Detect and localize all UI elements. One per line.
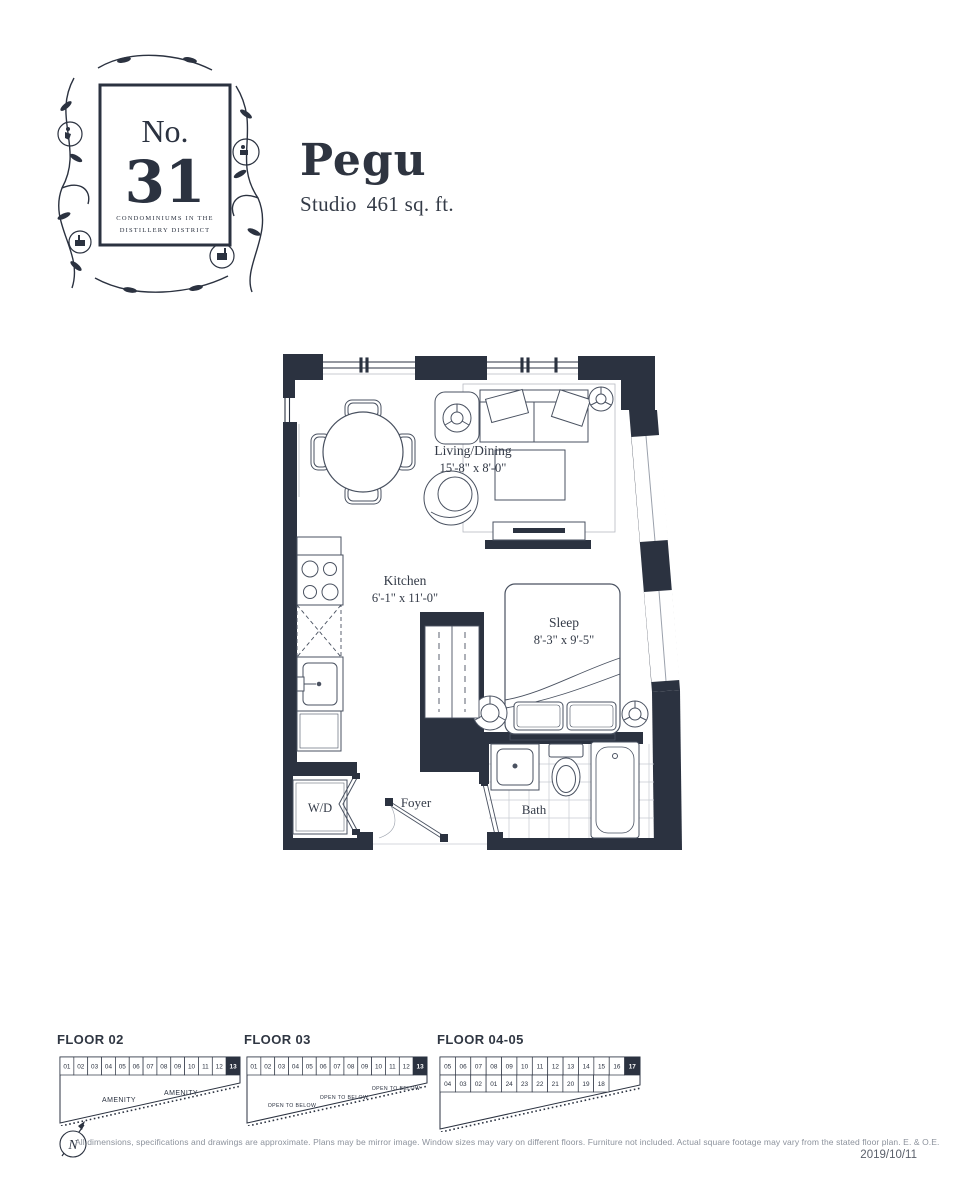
room-label-wd: W/D xyxy=(308,801,332,815)
room-label-foyer: Foyer xyxy=(401,795,432,810)
unit-number: 02 xyxy=(475,1081,483,1088)
unit-number: 07 xyxy=(146,1063,154,1070)
unit-number: 02 xyxy=(77,1063,85,1070)
area-label: AMENITY xyxy=(164,1090,198,1097)
unit-number: 17 xyxy=(629,1063,637,1070)
dining-set xyxy=(311,400,415,504)
unit-number: 01 xyxy=(250,1063,258,1070)
room-label-bath: Bath xyxy=(522,802,547,817)
wardrobe xyxy=(425,626,479,718)
plan-date: 2019/10/11 xyxy=(860,1149,917,1161)
unit-number: 09 xyxy=(506,1063,514,1070)
unit-number: 03 xyxy=(91,1063,99,1070)
unit-number: 06 xyxy=(133,1063,141,1070)
unit-name: Pegu xyxy=(300,138,454,184)
lower-cabinet xyxy=(297,711,341,751)
unit-number: 10 xyxy=(188,1063,196,1070)
keyplan-label: FLOOR 02 xyxy=(57,1032,243,1047)
toilet xyxy=(549,744,583,796)
unit-number: 08 xyxy=(490,1063,498,1070)
unit-number: 24 xyxy=(506,1081,514,1088)
unit-number: 21 xyxy=(552,1081,560,1088)
unit-number: 05 xyxy=(119,1063,127,1070)
unit-number: 12 xyxy=(216,1063,224,1070)
unit-number: 09 xyxy=(174,1063,182,1070)
unit-number: 13 xyxy=(417,1063,425,1070)
logo-number: 31 xyxy=(125,148,206,216)
unit-number: 16 xyxy=(613,1063,621,1070)
floor-lamp xyxy=(589,387,613,411)
room-label-living-dining: Living/Dining xyxy=(434,443,511,458)
vanity-sink xyxy=(491,744,539,790)
unit-number: 20 xyxy=(567,1081,575,1088)
floorplan-sheet: { "logo": { "prefix": "No.", "number": "… xyxy=(0,0,972,1188)
unit-number: 07 xyxy=(475,1063,483,1070)
unit-number: 01 xyxy=(63,1063,71,1070)
pillow xyxy=(567,702,616,730)
unit-number: 03 xyxy=(278,1063,286,1070)
unit-area: 461 sq. ft. xyxy=(367,192,454,216)
unit-number: 05 xyxy=(444,1063,452,1070)
tv-console xyxy=(493,522,585,540)
unit-number: 09 xyxy=(361,1063,369,1070)
kitchen-sink xyxy=(297,657,343,711)
unit-number: 04 xyxy=(105,1063,113,1070)
logo-tagline-2: DISTILLERY DISTRICT xyxy=(120,227,211,234)
keyplan-drawing-floor-03: 01020304050607080910111213OPEN TO BELOWO… xyxy=(244,1052,430,1126)
unit-subtitle: Studio461 sq. ft. xyxy=(300,192,454,217)
title-block: Pegu Studio461 sq. ft. xyxy=(300,138,454,217)
unit-number: 13 xyxy=(230,1063,238,1070)
room-label-kitchen: Kitchen xyxy=(384,573,427,588)
room-dims-living-dining: 15'-8" x 8'-0" xyxy=(440,461,507,475)
unit-number: 12 xyxy=(403,1063,411,1070)
bathtub xyxy=(591,742,639,838)
unit-number: 19 xyxy=(582,1081,590,1088)
room-dims-kitchen: 6'-1" x 11'-0" xyxy=(372,591,438,605)
dining-table xyxy=(323,412,403,492)
logo-prefix: No. xyxy=(141,113,188,149)
unit-type: Studio xyxy=(300,192,357,216)
sleep-area xyxy=(473,584,648,740)
nightstand xyxy=(622,701,648,727)
unit-number: 01 xyxy=(490,1081,498,1088)
unit-number: 10 xyxy=(375,1063,383,1070)
unit-number: 08 xyxy=(160,1063,168,1070)
unit-number: 11 xyxy=(389,1063,396,1070)
unit-number: 23 xyxy=(521,1081,529,1088)
unit-number: 11 xyxy=(202,1063,209,1070)
lounge-chair xyxy=(424,471,478,525)
unit-number: 18 xyxy=(598,1081,606,1088)
side-table xyxy=(435,392,479,444)
unit-number: 03 xyxy=(459,1081,467,1088)
area-label: OPEN TO BELOW xyxy=(372,1086,421,1092)
unit-number: 15 xyxy=(598,1063,606,1070)
room-label-sleep: Sleep xyxy=(549,615,579,630)
logo-tagline-1: CONDOMINIUMS IN THE xyxy=(116,215,213,222)
keyplan-floor-04-05: FLOOR 04-05 0506070809101112131415161704… xyxy=(437,1032,643,1137)
brand-logo: No. 31 CONDOMINIUMS IN THE DISTILLERY DI… xyxy=(40,40,268,304)
unit-number: 04 xyxy=(444,1081,452,1088)
floorplan-drawing: Living/Dining 15'-8" x 8'-0" Kitchen 6'-… xyxy=(283,352,683,852)
unit-number: 08 xyxy=(347,1063,355,1070)
keyplan-label: FLOOR 04-05 xyxy=(437,1032,643,1047)
unit-number: 14 xyxy=(583,1063,591,1070)
unit-number: 11 xyxy=(537,1063,544,1070)
kitchen-fixtures xyxy=(297,537,343,751)
stove xyxy=(297,555,343,605)
keyplan-drawing-floor-04-05: 0506070809101112131415161704030201242322… xyxy=(437,1052,643,1132)
area-label: OPEN TO BELOW xyxy=(320,1095,369,1101)
keyplan-floor-03: FLOOR 03 01020304050607080910111213OPEN … xyxy=(244,1032,430,1131)
room-dims-sleep: 8'-3" x 9'-5" xyxy=(534,633,595,647)
pillow xyxy=(514,702,563,730)
keyplan-label: FLOOR 03 xyxy=(244,1032,430,1047)
unit-number: 06 xyxy=(320,1063,328,1070)
unit-number: 22 xyxy=(536,1081,544,1088)
keyplan-floor-02: FLOOR 02 01020304050607080910111213AMENI… xyxy=(57,1032,243,1131)
unit-number: 07 xyxy=(333,1063,341,1070)
keyplan-drawing-floor-02: 01020304050607080910111213AMENITYAMENITY xyxy=(57,1052,243,1126)
unit-number: 02 xyxy=(264,1063,272,1070)
sofa xyxy=(480,389,591,442)
balcony-edge xyxy=(441,1088,641,1132)
unit-number: 05 xyxy=(306,1063,314,1070)
unit-number: 10 xyxy=(521,1063,529,1070)
unit-number: 06 xyxy=(460,1063,468,1070)
unit-number: 12 xyxy=(552,1063,560,1070)
area-label: OPEN TO BELOW xyxy=(268,1103,317,1109)
dishwasher xyxy=(297,605,341,657)
bath-area xyxy=(481,742,654,838)
unit-number: 04 xyxy=(292,1063,300,1070)
unit-number: 13 xyxy=(567,1063,575,1070)
disclaimer-text: All dimensions, specifications and drawi… xyxy=(75,1137,932,1147)
area-label: AMENITY xyxy=(102,1097,136,1104)
